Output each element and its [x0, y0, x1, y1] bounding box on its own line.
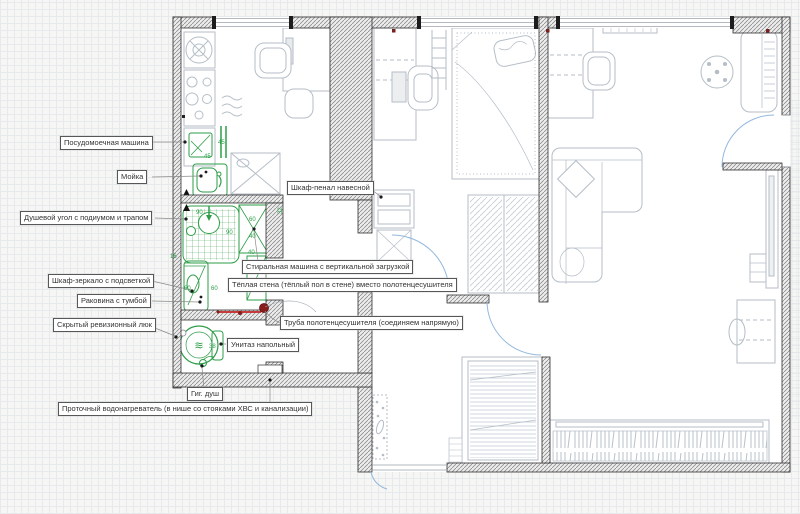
svg-text:90: 90 — [196, 210, 203, 216]
svg-text:45: 45 — [218, 140, 225, 146]
svg-text:60: 60 — [211, 286, 218, 292]
svg-text:60: 60 — [184, 286, 191, 292]
svg-text:16: 16 — [170, 254, 177, 260]
svg-text:45: 45 — [204, 154, 211, 160]
callout-dishwasher: Посудомоечная машина — [60, 136, 153, 150]
floor-plan-svg: ≋ — [0, 0, 800, 514]
callout-washer: Стиральная машина с вертикальной загрузк… — [242, 260, 413, 274]
callout-water-heater: Проточный водонагреватель (в нише со сто… — [58, 402, 312, 416]
entry-door-arc — [371, 472, 387, 489]
callout-vanity: Раковина с тумбой — [77, 294, 151, 308]
floor-plan-page: ≋ — [0, 0, 800, 514]
callout-toilet: Унитаз напольный — [227, 338, 299, 352]
callout-revision-hatch: Скрытый ревизионный люк — [53, 318, 156, 332]
svg-text:40: 40 — [248, 250, 255, 256]
riser-niche — [258, 365, 282, 373]
toilet-swirl-symbol: ≋ — [194, 339, 203, 352]
callout-kitchen-sink: Мойка — [117, 170, 147, 184]
svg-text:40: 40 — [249, 234, 256, 240]
callout-tall-cabinet: Шкаф-пенал навесной — [287, 181, 374, 195]
svg-text:60: 60 — [249, 217, 256, 223]
callout-warm-wall: Тёплая стена (тёплый пол в стене) вместо… — [228, 278, 457, 292]
svg-text:90: 90 — [226, 230, 233, 236]
svg-text:38: 38 — [209, 344, 216, 350]
balcony-tiles — [790, 100, 800, 420]
callout-gig-shower: Гиг. душ — [187, 387, 223, 401]
callout-mirror-cabinet: Шкаф-зеркало с подсветкой — [48, 274, 154, 288]
callout-shower: Душевой угол с подиумом и трапом — [20, 211, 152, 225]
svg-text:32: 32 — [278, 207, 284, 214]
callout-towel-pipe: Труба полотенцесушителя (соединяем напря… — [280, 316, 463, 330]
